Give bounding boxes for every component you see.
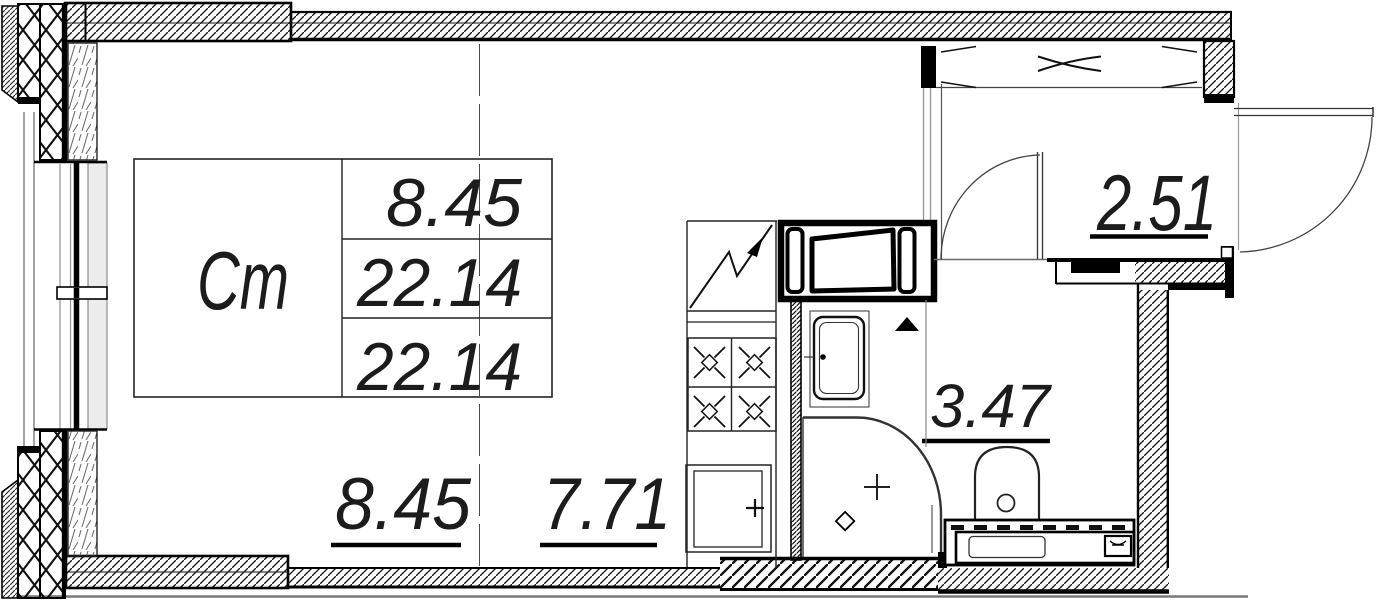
svg-text:Ст: Ст bbox=[197, 234, 289, 327]
svg-text:22.14: 22.14 bbox=[356, 329, 522, 405]
svg-text:8.45: 8.45 bbox=[386, 165, 522, 241]
svg-text:2.51: 2.51 bbox=[1096, 158, 1217, 247]
svg-text:7.71: 7.71 bbox=[543, 464, 671, 545]
svg-text:3.47: 3.47 bbox=[930, 372, 1052, 440]
svg-text:8.45: 8.45 bbox=[335, 464, 471, 545]
svg-text:22.14: 22.14 bbox=[356, 245, 522, 321]
